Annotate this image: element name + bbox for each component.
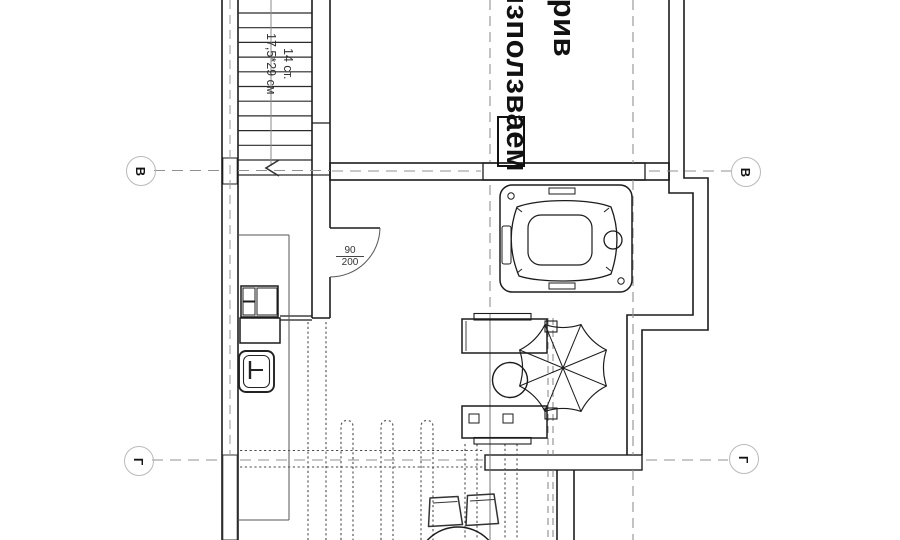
door-size-label: 90 200	[336, 245, 364, 268]
right-boundary-wall	[627, 0, 708, 455]
left-wall	[222, 0, 238, 540]
cooktop	[240, 286, 280, 343]
roof-label-line1: неизползваем	[500, 0, 534, 172]
grid-marker-b-right: В	[731, 157, 761, 187]
stairs-count-label: 14 ст.	[281, 48, 294, 79]
parasol	[520, 325, 607, 412]
stairs-dimension-label: 17,5*29 см	[264, 33, 277, 94]
door-width-value: 90	[336, 245, 364, 256]
roof-label-line2: покрив	[547, 0, 581, 57]
lower-level-wall	[557, 470, 574, 540]
terrace-chair-1	[429, 497, 463, 527]
grid-marker-b-left: В	[126, 156, 156, 186]
grid-axis-lines	[152, 0, 731, 540]
terrace-table	[416, 527, 500, 540]
overhead-edge-pair	[548, 318, 553, 540]
sun-lounger-1	[462, 314, 557, 354]
grid-marker-g-left: Г	[124, 446, 154, 476]
jacuzzi-jet	[604, 231, 622, 249]
sun-lounger-2	[462, 406, 557, 444]
grid-marker-g-left-letter: Г	[132, 457, 147, 464]
jacuzzi	[500, 185, 632, 292]
kitchen-counter	[238, 235, 289, 520]
floor-plan-canvas: неизползваем покрив 14 ст. 17,5*29 см 90…	[0, 0, 900, 540]
grid-marker-g-right-letter: Г	[737, 455, 752, 462]
parapet-wall	[485, 455, 642, 470]
pergola-beams	[240, 322, 517, 540]
stair-direction-arrow	[266, 160, 279, 176]
door-height-value: 200	[336, 256, 364, 268]
grid-marker-g-right: Г	[729, 444, 759, 474]
grid-marker-b-left-letter: В	[133, 166, 148, 175]
jacuzzi-control-panel	[502, 226, 511, 264]
grid-marker-b-right-letter: В	[738, 167, 753, 176]
terrace-chair-2	[466, 494, 499, 526]
sink	[239, 351, 274, 392]
